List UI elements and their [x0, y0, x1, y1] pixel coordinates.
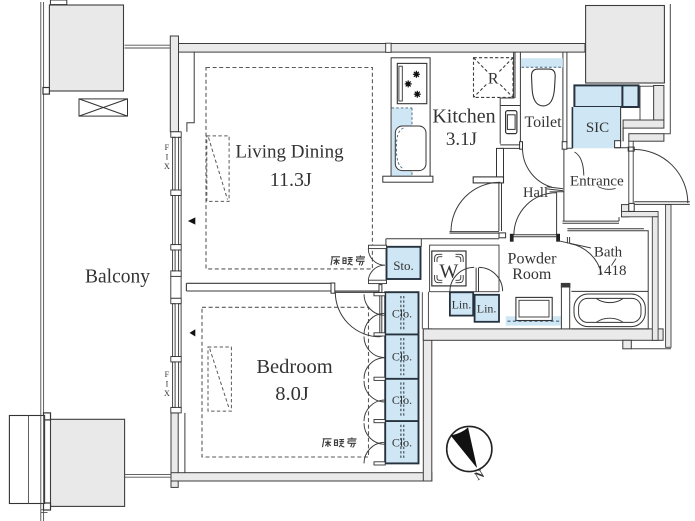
svg-text:F: F	[165, 143, 170, 152]
svg-text:X: X	[164, 162, 170, 171]
svg-text:Clo.: Clo.	[392, 393, 412, 407]
svg-text:Bedroom: Bedroom	[256, 356, 332, 378]
svg-text:3.1J: 3.1J	[446, 129, 477, 150]
svg-text:Entrance: Entrance	[570, 172, 624, 189]
svg-text:I: I	[166, 380, 169, 389]
svg-text:SIC: SIC	[586, 120, 609, 136]
svg-text:I: I	[166, 153, 169, 162]
svg-text:Kitchen: Kitchen	[432, 106, 495, 128]
svg-text:8.0J: 8.0J	[275, 383, 309, 405]
svg-text:Clo.: Clo.	[392, 435, 412, 449]
svg-text:Lin.: Lin.	[452, 298, 472, 312]
svg-text:Powder: Powder	[508, 251, 558, 268]
svg-text:X: X	[164, 389, 170, 398]
svg-text:Clo.: Clo.	[392, 350, 412, 364]
svg-text:11.3J: 11.3J	[270, 169, 312, 191]
svg-text:R: R	[488, 71, 499, 88]
svg-text:Living Dining: Living Dining	[235, 142, 344, 163]
svg-text:F: F	[165, 370, 170, 379]
svg-text:Lin.: Lin.	[477, 302, 497, 316]
svg-text:Bath: Bath	[594, 245, 623, 261]
svg-text:Sto.: Sto.	[393, 258, 414, 273]
svg-text:Balcony: Balcony	[85, 267, 150, 288]
svg-text:Toilet: Toilet	[524, 114, 562, 131]
svg-text:W: W	[439, 261, 458, 283]
svg-text:Room: Room	[512, 266, 552, 283]
svg-text:Clo.: Clo.	[392, 306, 412, 320]
